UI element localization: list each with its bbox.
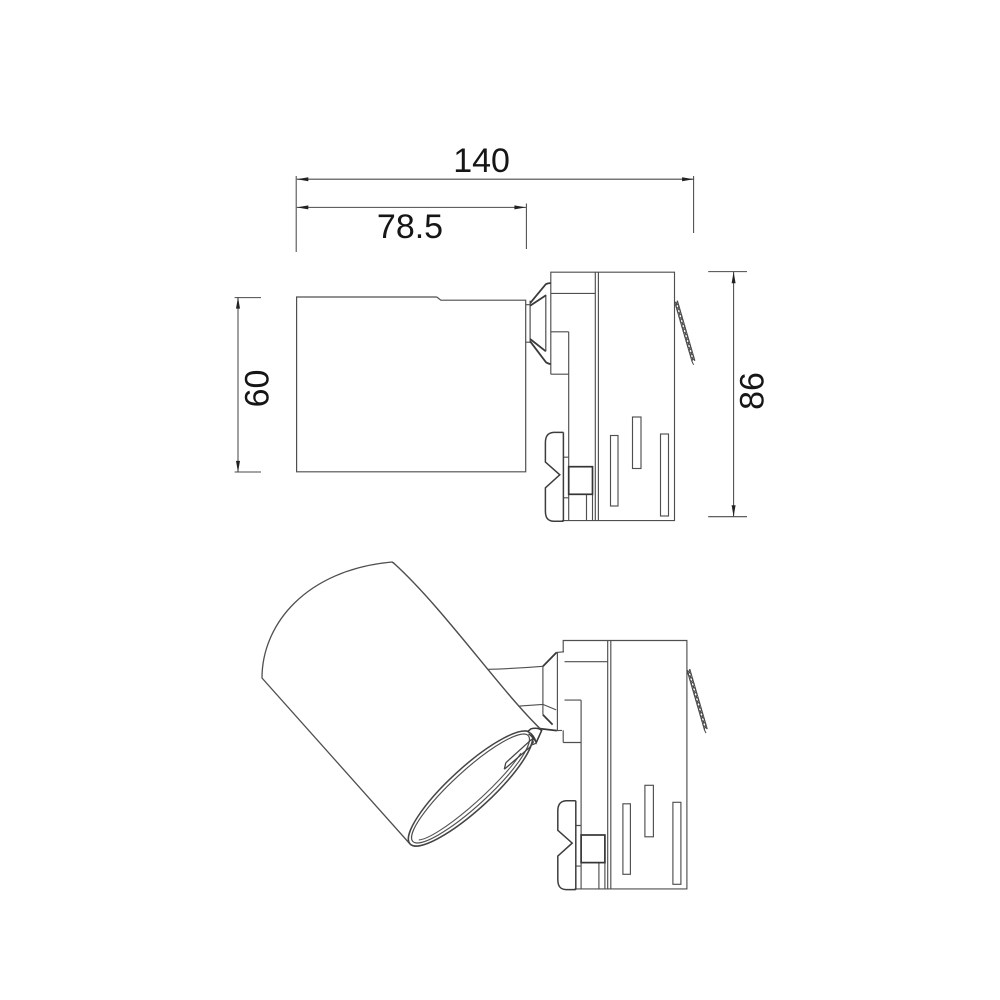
svg-text:86: 86: [734, 372, 772, 410]
svg-text:60: 60: [239, 370, 277, 408]
svg-text:140: 140: [453, 142, 510, 180]
svg-text:78.5: 78.5: [377, 208, 443, 246]
